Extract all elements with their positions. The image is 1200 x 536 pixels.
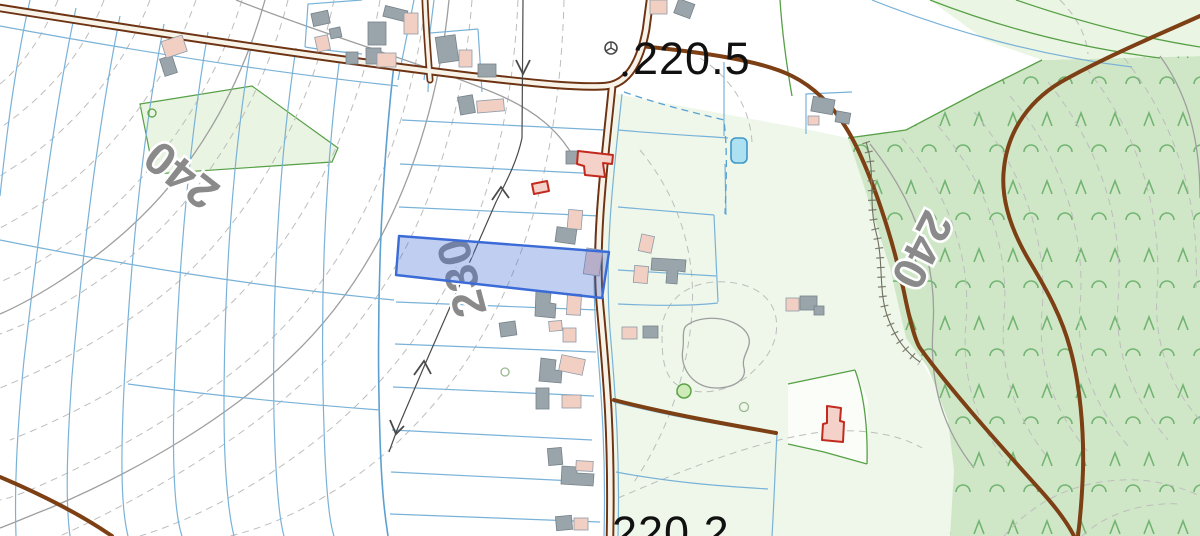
building xyxy=(547,447,562,465)
map-canvas[interactable]: 240 230 240 220.5 220.2 xyxy=(0,0,1200,536)
building xyxy=(435,35,458,64)
building xyxy=(459,50,472,67)
building xyxy=(562,395,581,408)
building xyxy=(811,96,835,115)
building xyxy=(458,95,476,115)
building xyxy=(643,326,658,338)
building xyxy=(567,209,583,229)
building xyxy=(536,388,549,409)
tree-icon xyxy=(677,384,691,398)
pond xyxy=(731,138,747,163)
building xyxy=(499,321,517,337)
building xyxy=(576,461,594,472)
building xyxy=(478,64,496,77)
building xyxy=(650,0,667,14)
building xyxy=(808,116,819,125)
selected-building[interactable] xyxy=(532,181,549,194)
spot-height-dot xyxy=(622,71,627,76)
building xyxy=(622,327,637,339)
building xyxy=(477,99,505,113)
building xyxy=(346,52,358,64)
building xyxy=(814,306,824,315)
building xyxy=(786,298,799,311)
building xyxy=(835,111,851,124)
building xyxy=(563,328,576,342)
building xyxy=(368,22,386,45)
building xyxy=(377,53,396,67)
building xyxy=(566,294,581,316)
spot-elevation-top: 220.5 xyxy=(633,33,751,84)
building xyxy=(315,35,331,52)
building xyxy=(329,27,342,39)
map-viewport[interactable]: 240 230 240 220.5 220.2 xyxy=(0,0,1200,536)
spot-elevation-bottom: 220.2 xyxy=(612,507,730,536)
building xyxy=(555,515,572,530)
survey-marker-icon xyxy=(605,42,617,54)
building xyxy=(574,518,588,530)
building xyxy=(404,13,418,34)
building xyxy=(549,320,563,331)
building xyxy=(555,227,577,245)
building xyxy=(633,265,648,283)
